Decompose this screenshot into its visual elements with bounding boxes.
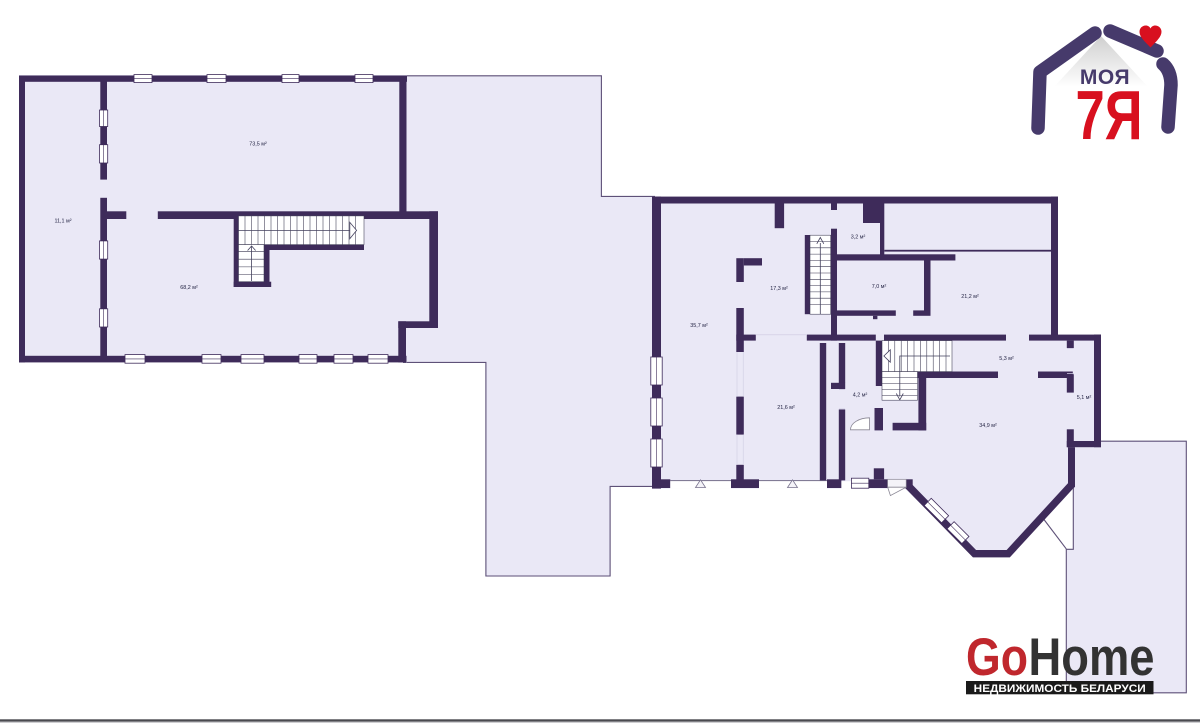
svg-text:Go: Go	[966, 628, 1028, 687]
svg-text:5,3 м²: 5,3 м²	[999, 356, 1014, 362]
svg-text:35,7 м²: 35,7 м²	[690, 323, 708, 329]
svg-text:7,0 м²: 7,0 м²	[872, 284, 887, 290]
svg-text:17,3 м²: 17,3 м²	[770, 286, 788, 292]
svg-text:73,5 м²: 73,5 м²	[249, 142, 267, 148]
svg-text:5,1 м²: 5,1 м²	[1077, 395, 1092, 401]
svg-text:68,2 м²: 68,2 м²	[180, 285, 198, 291]
svg-text:НЕДВИЖИМОСТЬ БЕЛАРУСИ: НЕДВИЖИМОСТЬ БЕЛАРУСИ	[974, 683, 1146, 695]
svg-text:Home: Home	[1029, 628, 1155, 687]
svg-text:3,2 м²: 3,2 м²	[851, 234, 866, 240]
svg-text:34,9 м²: 34,9 м²	[979, 423, 997, 429]
svg-text:4,2 м²: 4,2 м²	[853, 393, 868, 399]
svg-text:7Я: 7Я	[1076, 76, 1143, 154]
svg-text:21,2 м²: 21,2 м²	[961, 294, 979, 300]
svg-text:11,1 м²: 11,1 м²	[54, 219, 71, 225]
svg-text:21,6 м²: 21,6 м²	[777, 405, 795, 411]
